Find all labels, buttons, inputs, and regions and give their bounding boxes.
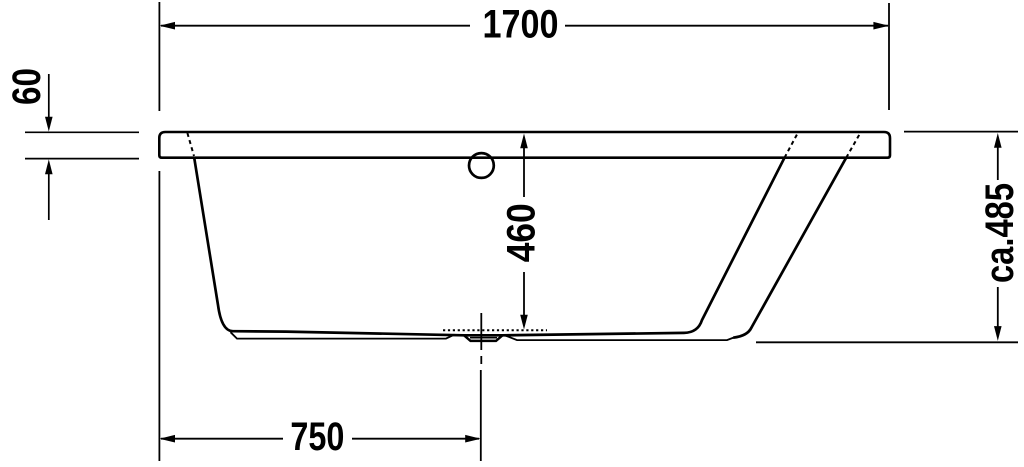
svg-text:750: 750 [290,415,344,459]
svg-text:ca.485: ca.485 [978,183,1022,283]
svg-text:1700: 1700 [483,2,559,46]
svg-text:460: 460 [500,203,544,262]
svg-text:60: 60 [5,68,49,105]
